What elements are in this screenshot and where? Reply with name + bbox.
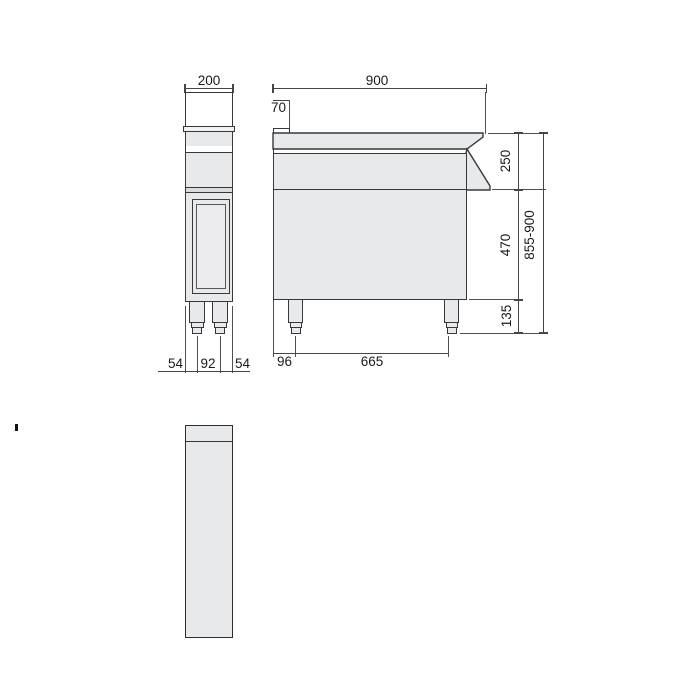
dim-backlip-label: 70	[271, 101, 286, 115]
dim-front-feet-line	[158, 371, 250, 372]
dim-front-width-line	[185, 88, 233, 89]
dim-leg-height-label: 135	[500, 305, 514, 328]
dim-front-foot-span-label: 92	[200, 357, 215, 371]
dim-tick	[514, 332, 523, 333]
dim-tick	[514, 132, 523, 133]
front-leg-left	[189, 301, 205, 323]
drawing-canvas: 200 54 92 54 900 70	[0, 0, 700, 700]
dim-body-height-label: 470	[499, 234, 513, 257]
ext-line	[273, 301, 274, 357]
dim-depth-line	[273, 88, 487, 89]
dim-upper-height-label: 250	[499, 150, 513, 173]
ext-line	[460, 333, 546, 334]
front-upper-band	[185, 152, 233, 188]
side-body-divider	[273, 189, 467, 190]
dim-front-width-label: 200	[198, 74, 221, 88]
plan-divider	[186, 441, 232, 442]
side-foot-back-base	[291, 327, 301, 334]
plan-outline	[185, 425, 233, 638]
dim-tick	[514, 299, 523, 300]
ext-line	[232, 306, 233, 373]
dim-overall-height-label: 855-900	[523, 210, 537, 260]
dim-tick	[514, 189, 523, 190]
ext-line	[220, 336, 221, 373]
front-worktop-band	[185, 131, 233, 147]
dim-leg-spacing-label: 665	[361, 355, 384, 369]
dim-overall-height-line	[543, 133, 544, 333]
dim-tick	[539, 132, 548, 133]
front-door-panel	[196, 204, 226, 289]
dim-front-right-foot-label: 54	[235, 357, 250, 371]
front-top-panel	[185, 92, 233, 127]
side-foot-front-base	[447, 327, 457, 334]
dim-leg-back-offset-label: 96	[277, 355, 292, 369]
dim-tick	[272, 84, 273, 93]
dim-front-left-foot-label: 54	[168, 357, 183, 371]
dim-tick	[539, 332, 548, 333]
dim-sections-line	[518, 133, 519, 333]
side-leg-back	[288, 299, 303, 323]
dim-depth-label: 900	[366, 74, 389, 88]
front-foot-left-base	[192, 327, 202, 334]
front-foot-right-base	[215, 327, 225, 334]
ext-line	[185, 306, 186, 373]
ext-line	[197, 336, 198, 373]
side-body	[273, 153, 467, 300]
front-leg-right	[212, 301, 228, 323]
page-mark	[15, 424, 18, 431]
side-leg-front	[444, 299, 459, 323]
